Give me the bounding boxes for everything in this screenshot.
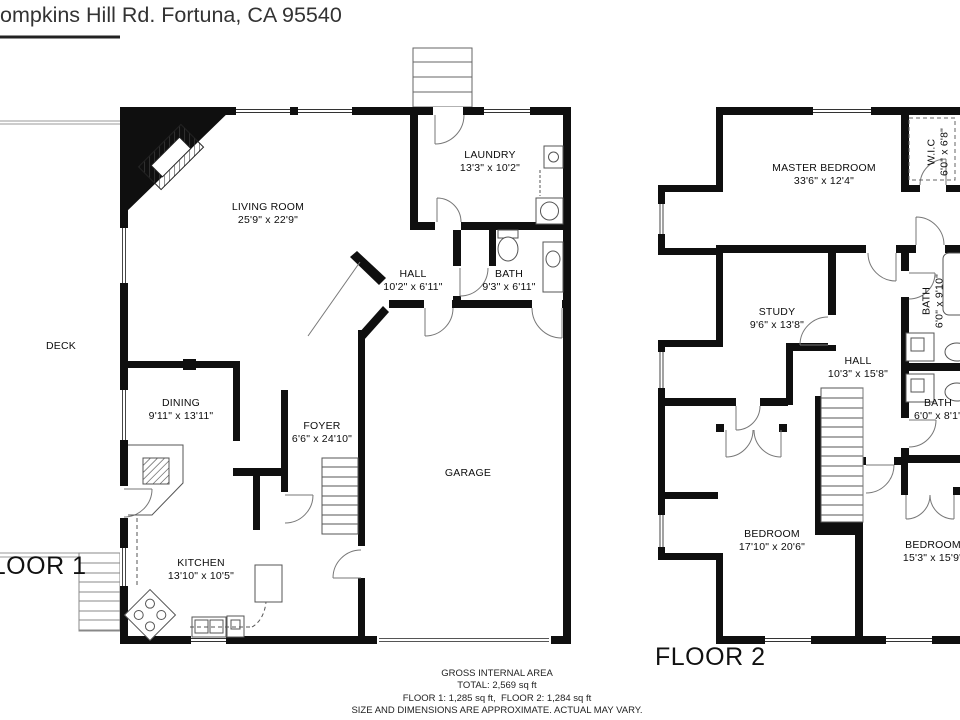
footer-line-disclaimer: SIZE AND DIMENSIONS ARE APPROXIMATE. ACT… <box>351 705 642 717</box>
room-label-master-bedroom: MASTER BEDROOM 33'6" x 12'4" <box>772 162 876 187</box>
closet-door <box>285 495 313 523</box>
floor1-label: FLOOR 1 <box>0 552 86 581</box>
bathtub <box>943 253 960 315</box>
deck-railing <box>0 37 120 557</box>
room-label-bath: BATH 9'3" x 6'11" <box>482 268 535 293</box>
closet-double-doors <box>906 495 954 519</box>
footer-line-total: TOTAL: 2,569 sq ft <box>351 680 642 692</box>
room-label-kitchen: KITCHEN 13'10" x 10'5" <box>168 557 234 582</box>
room-label-living-room: LIVING ROOM 25'9" x 22'9" <box>232 201 304 226</box>
floor2-stairs <box>821 388 863 522</box>
room-label-hall: HALL 10'2" x 6'11" <box>383 268 442 293</box>
room-label-bedroom-left: BEDROOM 17'10" x 20'6" <box>739 528 805 553</box>
foyer-stairs <box>322 458 358 534</box>
footer-line-gross: GROSS INTERNAL AREA <box>351 668 642 680</box>
room-label-dining: DINING 9'11" x 13'11" <box>149 397 214 422</box>
room-label-bedroom-right: BEDROOM 15'3" x 15'9" <box>903 539 960 564</box>
footer-line-floors: FLOOR 1: 1,285 sq ft, FLOOR 2: 1,284 sq … <box>351 693 642 705</box>
floor2-label: FLOOR 2 <box>655 643 765 672</box>
deck-door <box>124 489 152 517</box>
room-label-bath-lower: BATH 6'0" x 8'1" <box>914 397 960 422</box>
page-title: ompkins Hill Rd. Fortuna, CA 95540 <box>0 3 342 28</box>
room-label-deck: DECK <box>46 340 76 353</box>
room-label-wic: W.I.C 6'0" x 6'8" <box>926 128 951 176</box>
floorplan-drawing <box>0 0 960 720</box>
room-label-laundry: LAUNDRY 13'3" x 10'2" <box>460 149 520 174</box>
room-label-foyer: FOYER 6'6" x 24'10" <box>292 420 352 445</box>
room-label-hall2: HALL 10'3" x 15'8" <box>828 355 888 380</box>
room-label-garage: GARAGE <box>445 467 491 480</box>
closet-double-doors <box>726 430 781 457</box>
room-label-study: STUDY 9'6" x 13'8" <box>750 306 804 331</box>
room-label-bath-upper: BATH 6'0" x 9'10" <box>921 274 946 328</box>
gross-area-footer: GROSS INTERNAL AREA TOTAL: 2,569 sq ft F… <box>351 668 642 717</box>
front-door <box>435 115 464 144</box>
floorplan-page: ompkins Hill Rd. Fortuna, CA 95540 LIVIN… <box>0 0 960 720</box>
entry-steps <box>413 48 472 107</box>
